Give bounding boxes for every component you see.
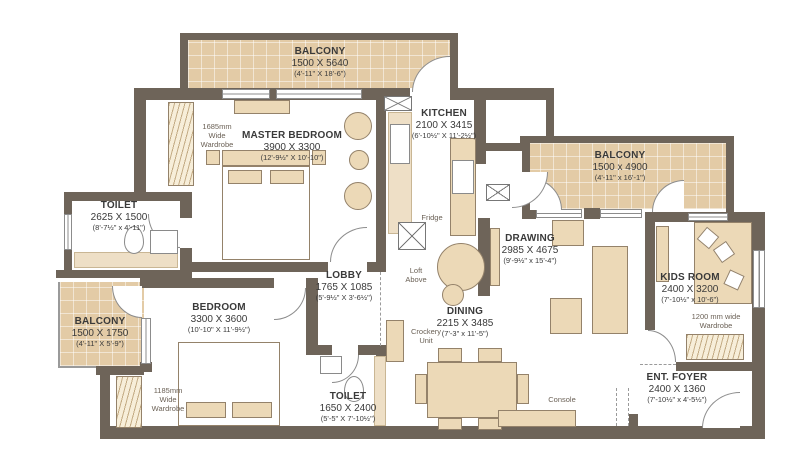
wall bbox=[100, 368, 110, 428]
room-name: DRAWING bbox=[482, 233, 578, 245]
pillow-icon bbox=[228, 170, 262, 184]
pillow-icon bbox=[270, 170, 304, 184]
duct-x-icon bbox=[486, 184, 510, 201]
door-arc-master-bedroom bbox=[330, 227, 367, 262]
room-label-kitchen: KITCHEN 2100 X 3415 (6'-10½" X 11'-2½") bbox=[398, 108, 490, 140]
room-dims-ft: (5'-5" X 7'-10½") bbox=[310, 415, 386, 424]
fridge-icon bbox=[398, 222, 426, 250]
stool-icon bbox=[344, 182, 372, 210]
window bbox=[688, 213, 728, 221]
room-name: TOILET bbox=[310, 391, 386, 403]
dashed-passage-line bbox=[628, 388, 629, 426]
room-name: KITCHEN bbox=[398, 108, 490, 120]
washbasin-icon bbox=[150, 230, 178, 254]
room-name: KIDS ROOM bbox=[648, 272, 732, 284]
round-stool-icon bbox=[442, 284, 464, 306]
wall bbox=[520, 136, 734, 143]
wall bbox=[180, 201, 192, 218]
pillow-icon bbox=[186, 402, 226, 418]
room-dims-mm: 1500 X 1750 bbox=[64, 328, 136, 340]
wardrobe-icon bbox=[116, 376, 142, 428]
door-arc-bedroom bbox=[274, 288, 306, 320]
room-name: TOILET bbox=[76, 200, 162, 212]
wall bbox=[629, 414, 638, 426]
room-label-balcony-right: BALCONY 1500 x 4900 (4'-11" x 16'-1") bbox=[572, 150, 668, 182]
window bbox=[222, 89, 270, 99]
room-name: DINING bbox=[418, 306, 512, 318]
wall bbox=[180, 262, 328, 272]
room-dims-mm: 1765 X 1085 bbox=[310, 282, 378, 294]
wall bbox=[134, 88, 146, 200]
room-label-toilet-bottom: TOILET 1650 X 2400 (5'-5" X 7'-10½") bbox=[310, 391, 386, 423]
round-table-icon bbox=[437, 243, 485, 291]
room-dims-ft: (6'-10½" X 11'-2½") bbox=[398, 132, 490, 141]
wall bbox=[645, 212, 655, 330]
floor-plan: BALCONY 1500 X 5640 (4'-11" X 18'-6") MA… bbox=[0, 0, 800, 459]
shower-area bbox=[74, 252, 178, 268]
room-dims-ft: (4'-11" x 16'-1") bbox=[572, 174, 668, 183]
room-label-balcony-top: BALCONY 1500 X 5640 (4'-11" X 18'-6") bbox=[250, 46, 390, 78]
wall bbox=[480, 143, 522, 151]
wall bbox=[546, 88, 554, 143]
console-icon bbox=[498, 410, 576, 427]
annotation-wardrobe-bedroom: 1185mm Wide Wardrobe bbox=[144, 386, 192, 413]
armchair-icon bbox=[550, 298, 582, 334]
room-name: LOBBY bbox=[310, 270, 378, 282]
annotation-loft-above: Loft Above bbox=[394, 266, 438, 284]
wall bbox=[152, 278, 274, 288]
dashed-passage-line bbox=[640, 364, 676, 365]
window bbox=[753, 250, 765, 308]
room-dims-ft: (7'-10½" x 4'-5½") bbox=[634, 396, 720, 405]
wall bbox=[376, 235, 386, 263]
wall bbox=[450, 33, 458, 95]
annotation-fridge: Fridge bbox=[414, 213, 450, 222]
wall bbox=[376, 100, 386, 235]
annotation-console: Console bbox=[540, 395, 584, 404]
window bbox=[141, 318, 151, 364]
dashed-passage-line bbox=[616, 388, 617, 426]
chair-icon bbox=[438, 418, 462, 430]
room-dims-mm: 2625 X 1500 bbox=[76, 212, 162, 224]
room-label-lobby: LOBBY 1765 X 1085 (5'-9½" X 3'-6½") bbox=[310, 270, 378, 302]
annotation-wardrobe-master: 1685mm Wide Wardrobe bbox=[194, 122, 240, 149]
room-dims-ft: (5'-9½" X 3'-6½") bbox=[310, 294, 378, 303]
wall bbox=[306, 345, 332, 355]
room-dims-ft: (4'-11" X 18'-6") bbox=[250, 70, 390, 79]
door-arc-kids-room bbox=[648, 330, 676, 362]
room-dims-ft: (4'-11" X 5'-9") bbox=[64, 340, 136, 349]
room-dims-mm: 3900 X 3300 bbox=[226, 142, 358, 154]
room-dims-ft: (8'-7½" x 4'-11") bbox=[76, 224, 162, 233]
window bbox=[276, 89, 362, 99]
room-dims-ft: (7'-10½" x 10'-6") bbox=[648, 296, 732, 305]
wall bbox=[584, 208, 600, 219]
room-dims-mm: 2985 X 4675 bbox=[482, 245, 578, 257]
room-dims-mm: 1500 x 4900 bbox=[572, 162, 668, 174]
annotation-crockery-unit: Crockery Unit bbox=[402, 327, 450, 345]
wall bbox=[180, 33, 188, 95]
wall bbox=[676, 362, 754, 371]
room-name: BEDROOM bbox=[178, 302, 260, 314]
room-name: BALCONY bbox=[64, 316, 136, 328]
room-dims-ft: (10'-10" X 11'-9½") bbox=[178, 326, 260, 335]
room-dims-mm: 2400 X 1360 bbox=[634, 384, 720, 396]
dresser-icon bbox=[234, 100, 290, 114]
room-label-balcony-left: BALCONY 1500 X 1750 (4'-11" X 5'-9") bbox=[64, 316, 136, 348]
room-dims-ft: (12'-9½" X 10'-10") bbox=[226, 154, 358, 163]
pillow-icon bbox=[232, 402, 272, 418]
room-label-toilet-left: TOILET 2625 X 1500 (8'-7½" x 4'-11") bbox=[76, 200, 162, 232]
room-dims-mm: 2100 X 3415 bbox=[398, 120, 490, 132]
side-table-icon bbox=[206, 150, 220, 165]
room-dims-mm: 1650 X 2400 bbox=[310, 403, 386, 415]
room-label-master-bedroom: MASTER BEDROOM 3900 X 3300 (12'-9½" X 10… bbox=[226, 130, 358, 162]
room-name: BALCONY bbox=[572, 150, 668, 162]
room-label-kids-room: KIDS ROOM 2400 X 3200 (7'-10½" x 10'-6") bbox=[648, 272, 732, 304]
window bbox=[536, 209, 582, 218]
room-label-ent-foyer: ENT. FOYER 2400 X 1360 (7'-10½" x 4'-5½"… bbox=[634, 372, 720, 404]
wardrobe-icon bbox=[686, 334, 744, 360]
room-label-drawing: DRAWING 2985 X 4675 (9'-9½" x 15'-4") bbox=[482, 233, 578, 265]
sofa-icon bbox=[592, 246, 628, 334]
annotation-wardrobe-kids: 1200 mm wide Wardrobe bbox=[678, 312, 754, 330]
chair-icon bbox=[478, 348, 502, 362]
room-name: BALCONY bbox=[250, 46, 390, 58]
window bbox=[600, 209, 642, 218]
wall bbox=[56, 270, 192, 278]
room-label-bedroom: BEDROOM 3300 X 3600 (10'-10" X 11'-9½") bbox=[178, 302, 260, 334]
wall bbox=[100, 426, 762, 439]
room-name: MASTER BEDROOM bbox=[226, 130, 358, 142]
wall bbox=[180, 33, 458, 40]
stove-icon bbox=[452, 160, 474, 194]
room-dims-mm: 2400 X 3200 bbox=[648, 284, 732, 296]
chair-icon bbox=[415, 374, 427, 404]
chair-icon bbox=[438, 348, 462, 362]
wardrobe-icon bbox=[168, 102, 194, 186]
room-dims-mm: 1500 X 5640 bbox=[250, 58, 390, 70]
dashed-passage-line bbox=[380, 272, 381, 346]
room-dims-mm: 3300 X 3600 bbox=[178, 314, 260, 326]
chair-icon bbox=[517, 374, 529, 404]
washbasin-icon bbox=[320, 356, 342, 374]
wall bbox=[726, 136, 734, 219]
window bbox=[64, 214, 72, 250]
room-name: ENT. FOYER bbox=[634, 372, 720, 384]
room-dims-ft: (9'-9½" x 15'-4") bbox=[482, 257, 578, 266]
